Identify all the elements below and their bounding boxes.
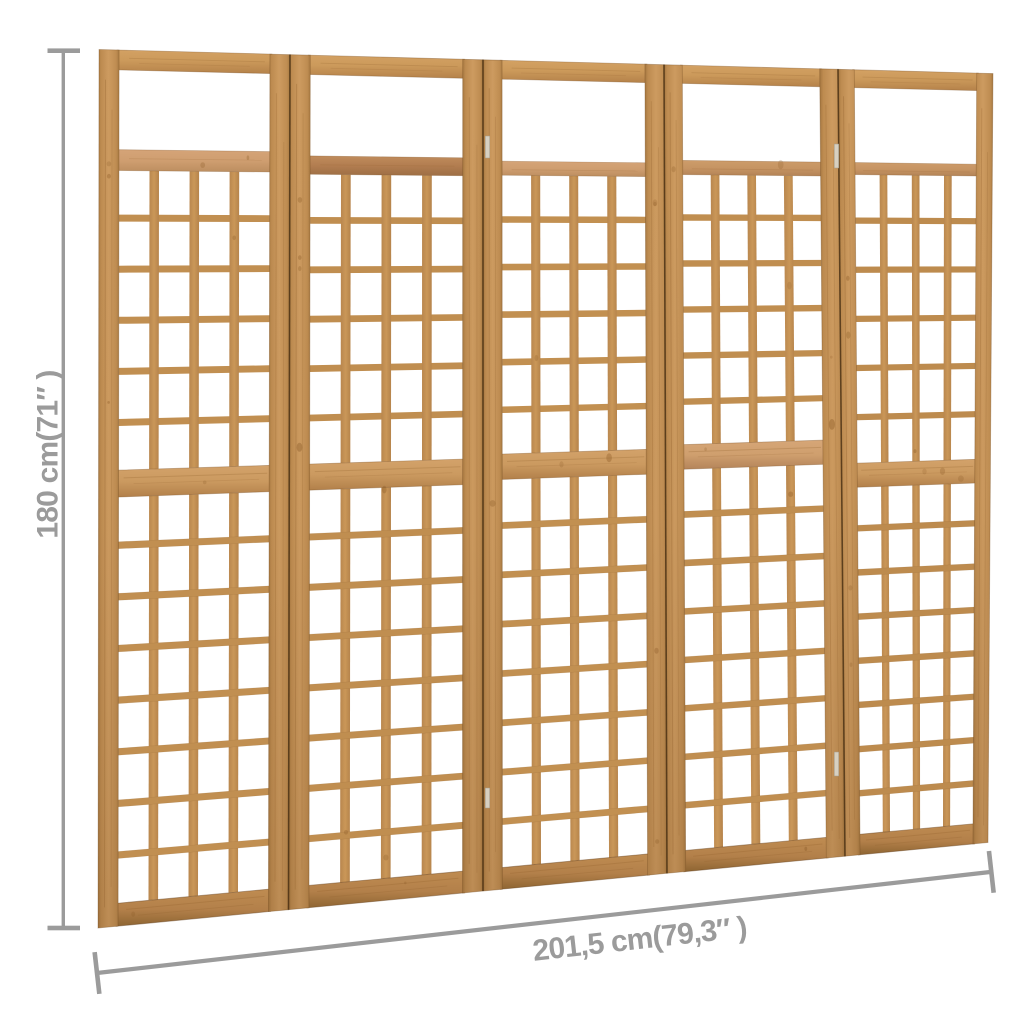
svg-text:180 cm(71″ ): 180 cm(71″ ) (32, 370, 65, 538)
